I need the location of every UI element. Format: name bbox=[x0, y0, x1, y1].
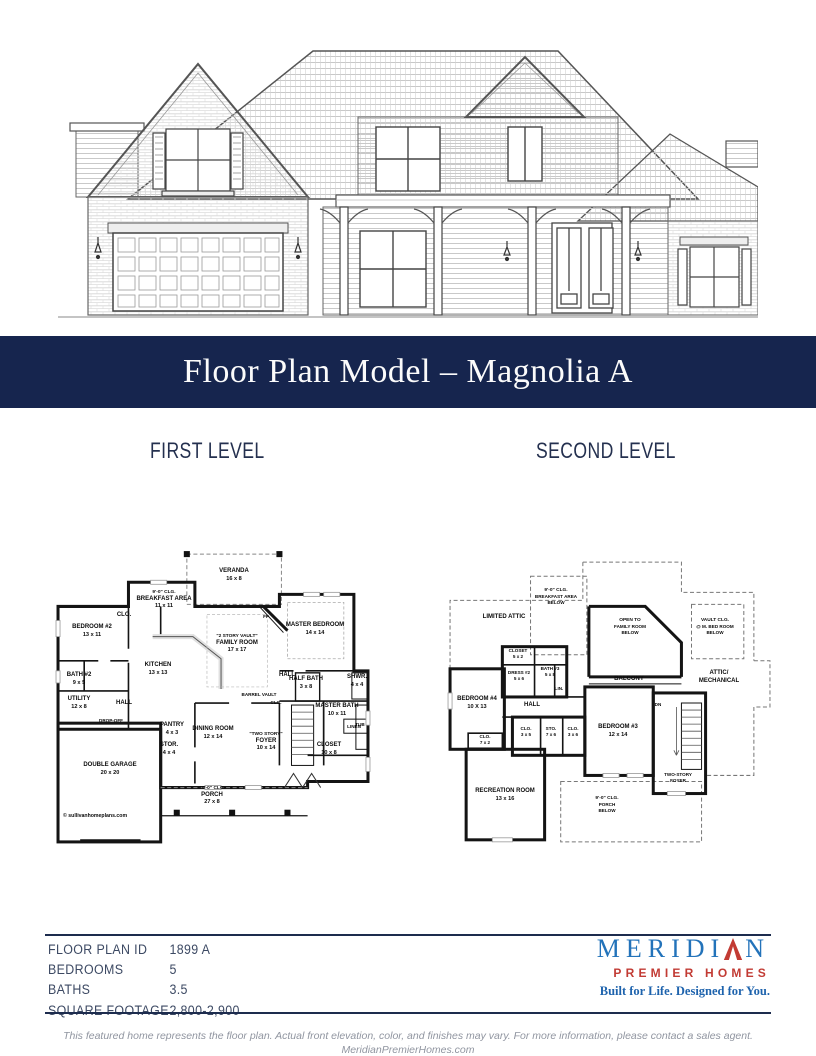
spec-value: 5 bbox=[169, 962, 239, 978]
room-label-balcony: BALCONY bbox=[614, 676, 644, 684]
spec-value: 1899 A bbox=[169, 942, 239, 958]
brand-word-right: N bbox=[745, 936, 770, 962]
brand-peak-icon bbox=[723, 938, 743, 960]
brand-word-left: MERIDI bbox=[597, 936, 725, 962]
room-label-hall-left: HALL bbox=[116, 700, 132, 708]
room-label-drop-off: DROP-OFF bbox=[99, 718, 123, 724]
spec-label: BATHS bbox=[48, 982, 169, 998]
room-label-half-bath: HALF BATH3 x 8 bbox=[289, 676, 323, 690]
room-label-attic-mech: ATTIC/MECHANICAL bbox=[699, 670, 739, 685]
room-label-pantry: PANTRY4 x 3 bbox=[160, 722, 184, 736]
spec-label: SQUARE FOOTAGE bbox=[48, 1003, 169, 1019]
room-label-closet: CLOSET10 x 8 bbox=[317, 742, 341, 756]
room-label-shower: SHWR.4 x 4 bbox=[347, 674, 367, 688]
room-label-clo-left: CLO.3 x 5 bbox=[521, 726, 532, 737]
room-label-master-bath: MASTER BATH10 x 11 bbox=[315, 703, 358, 717]
room-label-clo-hall: CLO.7 x 2 bbox=[480, 734, 491, 745]
brand-tagline: Built for Life. Designed for You. bbox=[597, 985, 770, 998]
room-label-open-family: OPEN TOFAMILY ROOMBELOW bbox=[614, 618, 646, 635]
page-title: Floor Plan Model – Magnolia A bbox=[183, 355, 633, 389]
room-label-master-bedroom: MASTER BEDROOM14 x 14 bbox=[286, 622, 344, 636]
room-label-linen: LINEN bbox=[347, 724, 361, 730]
disclaimer-text: This featured home represents the floor … bbox=[0, 1029, 816, 1043]
room-label-bedroom2: BEDROOM #213 x 11 bbox=[72, 624, 112, 638]
room-label-family-room: "2 STORY VAULT"FAMILY ROOM17 x 17 bbox=[216, 634, 258, 654]
brand-wordmark: MERIDIN bbox=[597, 936, 770, 962]
room-label-foyer2: TWO-STORYFOYER bbox=[664, 772, 692, 783]
room-label-dining: DINING ROOM12 x 14 bbox=[192, 726, 233, 740]
heading-first-level: FIRST LEVEL bbox=[150, 440, 265, 462]
room-label-breakfast: 9'-0" CLG.BREAKFAST AREA11 x 11 bbox=[136, 590, 191, 610]
room-label-utility: UTILITY12 x 8 bbox=[68, 696, 91, 710]
room-label-closet-52: CLOSET5 x 2 bbox=[509, 648, 528, 659]
room-label-bath2: BATH #29 x 5 bbox=[67, 672, 92, 686]
room-label-storage: STOR.4 x 4 bbox=[160, 742, 178, 756]
room-label-hall2: HALL bbox=[524, 702, 540, 710]
room-label-kitchen: KITCHEN13 x 13 bbox=[145, 662, 172, 676]
website-text: MeridianPremierHomes.com bbox=[0, 1043, 816, 1056]
spec-table: FLOOR PLAN ID 1899 A BEDROOMS 5 BATHS 3.… bbox=[48, 942, 240, 1019]
room-label-foyer: "TWO STORY"FOYER10 x 14 bbox=[249, 732, 282, 752]
room-label-porch-below: 9'-0" CLG.PORCHBELOW bbox=[595, 796, 618, 813]
spec-value: 3.5 bbox=[169, 982, 239, 998]
house-elevation bbox=[58, 6, 758, 332]
room-label-bath3: BATH #35 x 8 bbox=[541, 666, 560, 677]
room-label-clo: CLO. bbox=[117, 612, 131, 620]
footer-disclaimer: This featured home represents the floor … bbox=[0, 1029, 816, 1056]
house-elevation-drawing bbox=[58, 6, 758, 332]
room-label-dress2: DRESS #25 x 6 bbox=[508, 670, 530, 681]
title-banner: Floor Plan Model – Magnolia A bbox=[0, 336, 816, 408]
room-label-porch: 10'-0" CLG.PORCH27 x 8 bbox=[199, 786, 225, 806]
brochure-page: Floor Plan Model – Magnolia A FIRST LEVE… bbox=[0, 0, 816, 1056]
room-label-fp: FP bbox=[263, 614, 269, 620]
spec-label: FLOOR PLAN ID bbox=[48, 942, 169, 958]
second-level-plan: LIMITED ATTIC 9'-0" CLG.BREAKFAST AREABE… bbox=[442, 556, 776, 848]
brand-logo: MERIDIN PREMIER HOMES Built for Life. De… bbox=[597, 936, 770, 998]
room-label-clo-right: CLO.3 x 6 bbox=[568, 726, 579, 737]
room-label-sto: STO.7 x 6 bbox=[546, 726, 557, 737]
spec-label: BEDROOMS bbox=[48, 962, 169, 978]
room-label-clg: CLG. bbox=[271, 700, 282, 706]
heading-second-level: SECOND LEVEL bbox=[536, 440, 676, 462]
first-level-plan: VERANDA16 x 8 9'-0" CLG.BREAKFAST AREA11… bbox=[54, 550, 372, 844]
room-label-barrel-vault: BARREL VAULT bbox=[242, 692, 277, 698]
room-label-bedroom4: BEDROOM #410 X 13 bbox=[457, 696, 497, 710]
room-label-mbed-below: VAULT CLG.@ M. BED ROOMBELOW bbox=[696, 618, 733, 635]
room-label-dn: DN bbox=[655, 702, 662, 708]
room-label-lin: LIN. bbox=[555, 686, 564, 692]
room-label-breakfast-below: 9'-0" CLG.BREAKFAST AREABELOW bbox=[532, 588, 580, 605]
room-label-garage: DOUBLE GARAGE20 x 20 bbox=[83, 762, 136, 776]
divider-bottom bbox=[45, 1012, 771, 1014]
room-label-recreation: RECREATION ROOM13 x 16 bbox=[475, 788, 535, 802]
spec-value: 2,800-2,900 bbox=[169, 1003, 239, 1019]
room-label-veranda: VERANDA16 x 8 bbox=[219, 568, 249, 582]
room-label-bedroom3: BEDROOM #312 x 14 bbox=[598, 724, 638, 738]
brand-subtitle: PREMIER HOMES bbox=[597, 967, 770, 979]
room-label-limited-attic: LIMITED ATTIC bbox=[483, 614, 526, 622]
copyright-text: © sullivanhomeplans.com bbox=[63, 814, 127, 819]
